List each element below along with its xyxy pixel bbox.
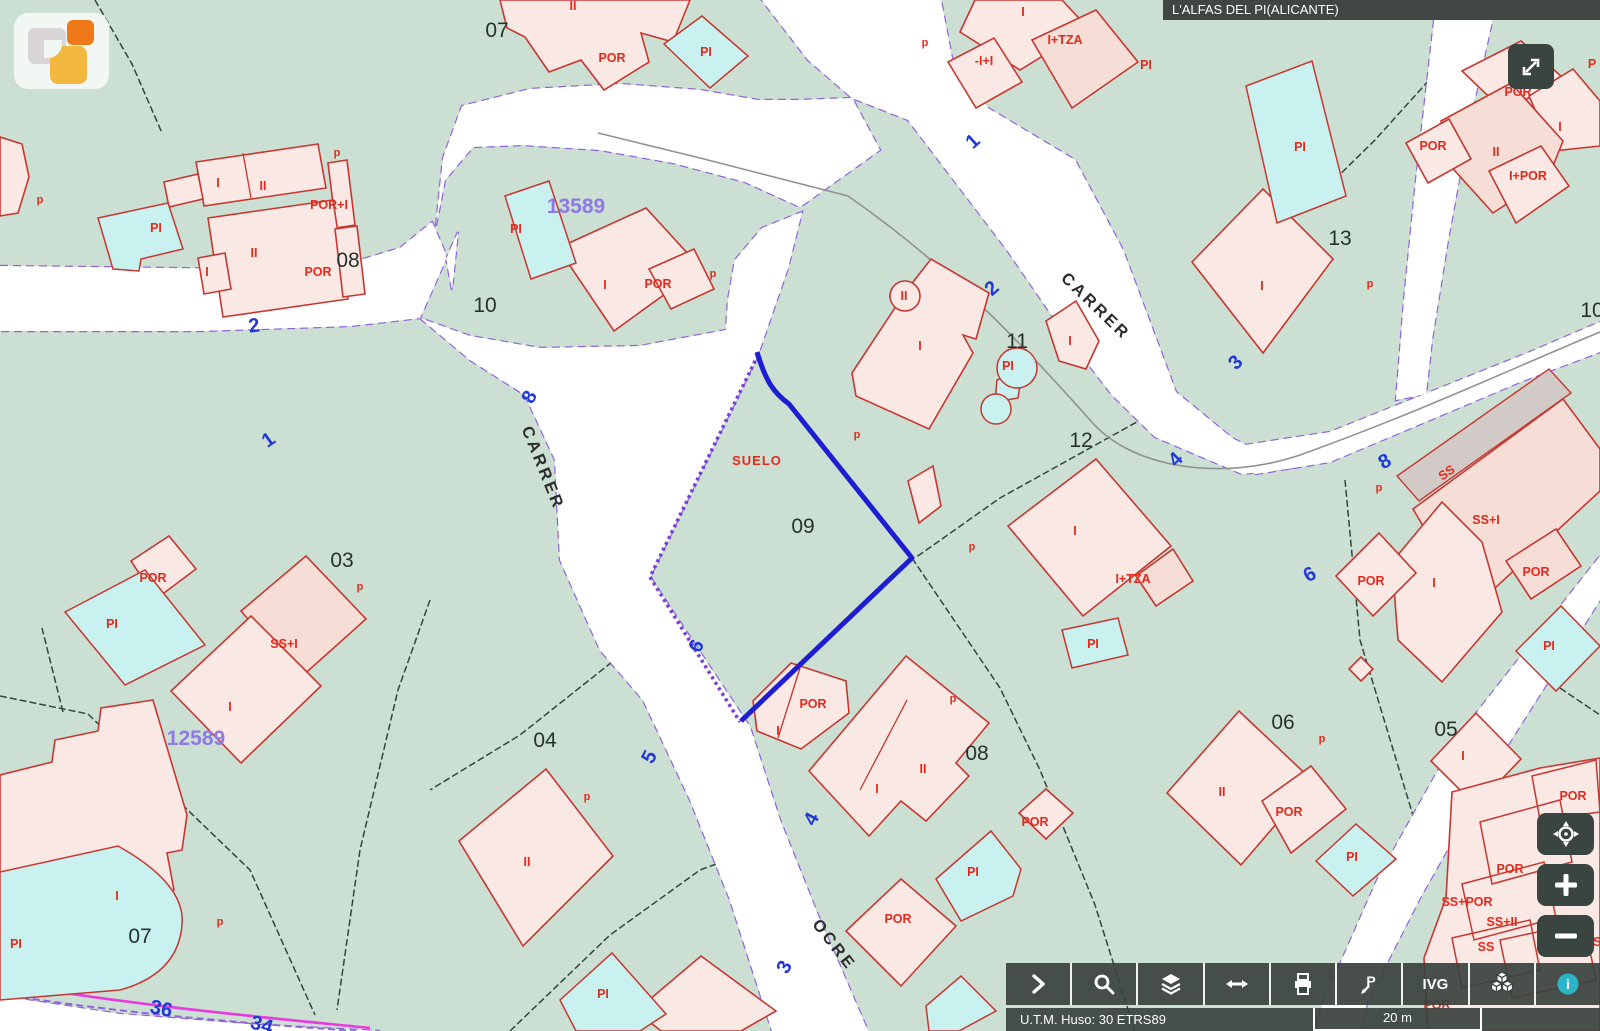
map-label: POR xyxy=(1496,862,1523,876)
map-label: -I+I xyxy=(975,54,993,68)
measure-button[interactable] xyxy=(1205,963,1271,1005)
map-label: PI xyxy=(597,987,609,1001)
map-label: POR xyxy=(799,697,826,711)
map-label: POR xyxy=(1357,574,1384,588)
map-label: I xyxy=(1558,120,1561,134)
map-toolbar: P IVG xyxy=(1006,963,1600,1005)
map-label: SS+I xyxy=(270,637,297,651)
map-label: p xyxy=(334,147,341,159)
map-label: POR xyxy=(1419,139,1446,153)
cadastral-map[interactable]: PORPIIII-I+II+TZAPIIIIPOR+IIIPORIPIPIIPO… xyxy=(0,0,1600,1031)
map-label: I xyxy=(216,176,219,190)
map-label: p xyxy=(584,791,591,803)
chevron-right-icon xyxy=(1025,971,1051,997)
scale-label: 20 m xyxy=(1383,1010,1412,1025)
map-label: I xyxy=(776,724,779,738)
map-label: 13 xyxy=(1328,227,1351,250)
pin-p-icon: P xyxy=(1356,971,1382,997)
search-button[interactable] xyxy=(1072,963,1138,1005)
map-label: 08 xyxy=(965,742,988,765)
map-label: 07 xyxy=(128,925,151,948)
zoom-in-button[interactable] xyxy=(1537,864,1594,906)
map-label: 03 xyxy=(330,549,353,572)
map-label: p xyxy=(710,268,717,280)
map-label: I xyxy=(1073,524,1076,538)
map-label: p xyxy=(217,916,224,928)
horizontal-arrows-icon xyxy=(1224,971,1250,997)
street-pin-button[interactable]: P xyxy=(1337,963,1403,1005)
map-label: II xyxy=(920,762,927,776)
plus-icon xyxy=(1552,871,1580,899)
map-label: II xyxy=(901,289,908,303)
map-label: POR xyxy=(1021,815,1048,829)
map-label: 08 xyxy=(336,249,359,272)
map-label: PI xyxy=(106,617,118,631)
map-label: POR xyxy=(644,277,671,291)
cubes-icon xyxy=(1488,970,1516,998)
map-label: II xyxy=(251,246,258,260)
status-bar: U.T.M. Huso: 30 ETRS89 20 m xyxy=(1006,1008,1600,1031)
map-label: I+TZA xyxy=(1115,572,1150,586)
fullscreen-button[interactable] xyxy=(1508,44,1554,89)
map-label: PI xyxy=(1346,850,1358,864)
expand-arrows-icon xyxy=(1518,54,1544,80)
utm-reference: U.T.M. Huso: 30 ETRS89 xyxy=(1020,1008,1166,1031)
map-label: 10 xyxy=(1580,299,1600,322)
map-label: p xyxy=(357,581,364,593)
map-label: 11 xyxy=(1006,330,1028,353)
map-label: POR xyxy=(139,571,166,585)
ivg-button[interactable]: IVG xyxy=(1403,963,1469,1005)
map-label: PI xyxy=(150,221,162,235)
map-label: SS xyxy=(1478,940,1495,954)
map-label: p xyxy=(969,541,976,553)
map-label: SS+II xyxy=(1487,915,1518,929)
map-label: 06 xyxy=(1271,711,1294,734)
map-label: p xyxy=(37,194,44,206)
scale-bar: 20 m xyxy=(1313,1008,1482,1031)
map-label: 13589 xyxy=(547,195,605,218)
map-label: PI xyxy=(1087,637,1099,651)
logo-orange-square xyxy=(67,20,94,45)
map-label: I+POR xyxy=(1509,169,1547,183)
map-label: I xyxy=(1021,5,1024,19)
map-label: PI xyxy=(1140,58,1152,72)
map-label: POR xyxy=(598,51,625,65)
expand-tools-button[interactable] xyxy=(1006,963,1072,1005)
catastro-map-viewer: PORPIIII-I+II+TZAPIIIIPOR+IIIPORIPIPIIPO… xyxy=(0,0,1600,1031)
map-label: 10 xyxy=(473,294,496,317)
ivg-label: IVG xyxy=(1423,976,1449,993)
magnifier-icon xyxy=(1091,971,1117,997)
target-icon xyxy=(1552,820,1580,848)
map-label: p xyxy=(922,37,929,49)
map-label: I xyxy=(1260,279,1263,293)
map-label: SS+POR xyxy=(1441,895,1492,909)
info-icon: i xyxy=(1555,971,1581,997)
map-label: PI xyxy=(1294,140,1306,154)
map-label: 07 xyxy=(485,19,508,42)
map-label: P xyxy=(1588,57,1596,71)
map-label: POR xyxy=(884,912,911,926)
municipality-title: L'ALFAS DEL PI(ALICANTE) xyxy=(1172,2,1339,17)
map-label: I xyxy=(603,278,606,292)
map-label: I xyxy=(1068,334,1071,348)
map-label: POR xyxy=(304,265,331,279)
zoom-out-button[interactable] xyxy=(1537,915,1594,957)
map-label: POR xyxy=(1522,565,1549,579)
map-label: II xyxy=(524,855,531,869)
printer-icon xyxy=(1290,971,1316,997)
map-label: PI xyxy=(967,865,979,879)
layers-button[interactable] xyxy=(1138,963,1204,1005)
map-label: II xyxy=(570,0,577,13)
layers-icon xyxy=(1158,971,1184,997)
map-label: II xyxy=(260,179,267,193)
map-label: SUELO xyxy=(732,453,782,468)
map-label: PI xyxy=(10,937,22,951)
map-label: I xyxy=(875,782,878,796)
map-label: PI xyxy=(700,45,712,59)
map-label: I xyxy=(1461,749,1464,763)
map-label: I xyxy=(205,265,208,279)
map-label: II xyxy=(1219,785,1226,799)
map-label: 12 xyxy=(1069,429,1092,452)
catastro-logo[interactable] xyxy=(14,13,109,89)
recenter-button[interactable] xyxy=(1537,813,1594,855)
minus-icon xyxy=(1552,922,1580,950)
map-label: p xyxy=(854,429,861,441)
info-button[interactable]: i xyxy=(1536,963,1600,1005)
map-label: POR+I xyxy=(310,198,348,212)
map-label: p xyxy=(1319,733,1326,745)
print-button[interactable] xyxy=(1271,963,1337,1005)
map-label: p xyxy=(1367,278,1374,290)
map-label: I xyxy=(228,700,231,714)
svg-text:i: i xyxy=(1566,976,1570,992)
buildings-3d-button[interactable] xyxy=(1470,963,1536,1005)
map-label: II xyxy=(1493,145,1500,159)
map-label: p xyxy=(950,693,957,705)
map-label: PI xyxy=(1543,639,1555,653)
map-label: SS+I xyxy=(1472,513,1499,527)
map-label: POR xyxy=(1559,789,1586,803)
map-label: p xyxy=(1376,482,1383,494)
map-label: I+TZA xyxy=(1047,33,1082,47)
map-label: PI xyxy=(1002,359,1014,373)
map-label: 04 xyxy=(533,729,557,752)
map-label: I xyxy=(1432,576,1435,590)
map-label: I xyxy=(115,889,118,903)
map-label: 09 xyxy=(791,515,814,538)
map-label: I xyxy=(918,339,921,353)
map-label: 12589 xyxy=(167,727,225,750)
map-label: PI xyxy=(510,222,522,236)
municipality-title-bar: L'ALFAS DEL PI(ALICANTE) xyxy=(1163,0,1600,20)
map-label: 36 xyxy=(148,996,174,1022)
map-label: POR xyxy=(1275,805,1302,819)
map-label: 05 xyxy=(1434,718,1457,741)
